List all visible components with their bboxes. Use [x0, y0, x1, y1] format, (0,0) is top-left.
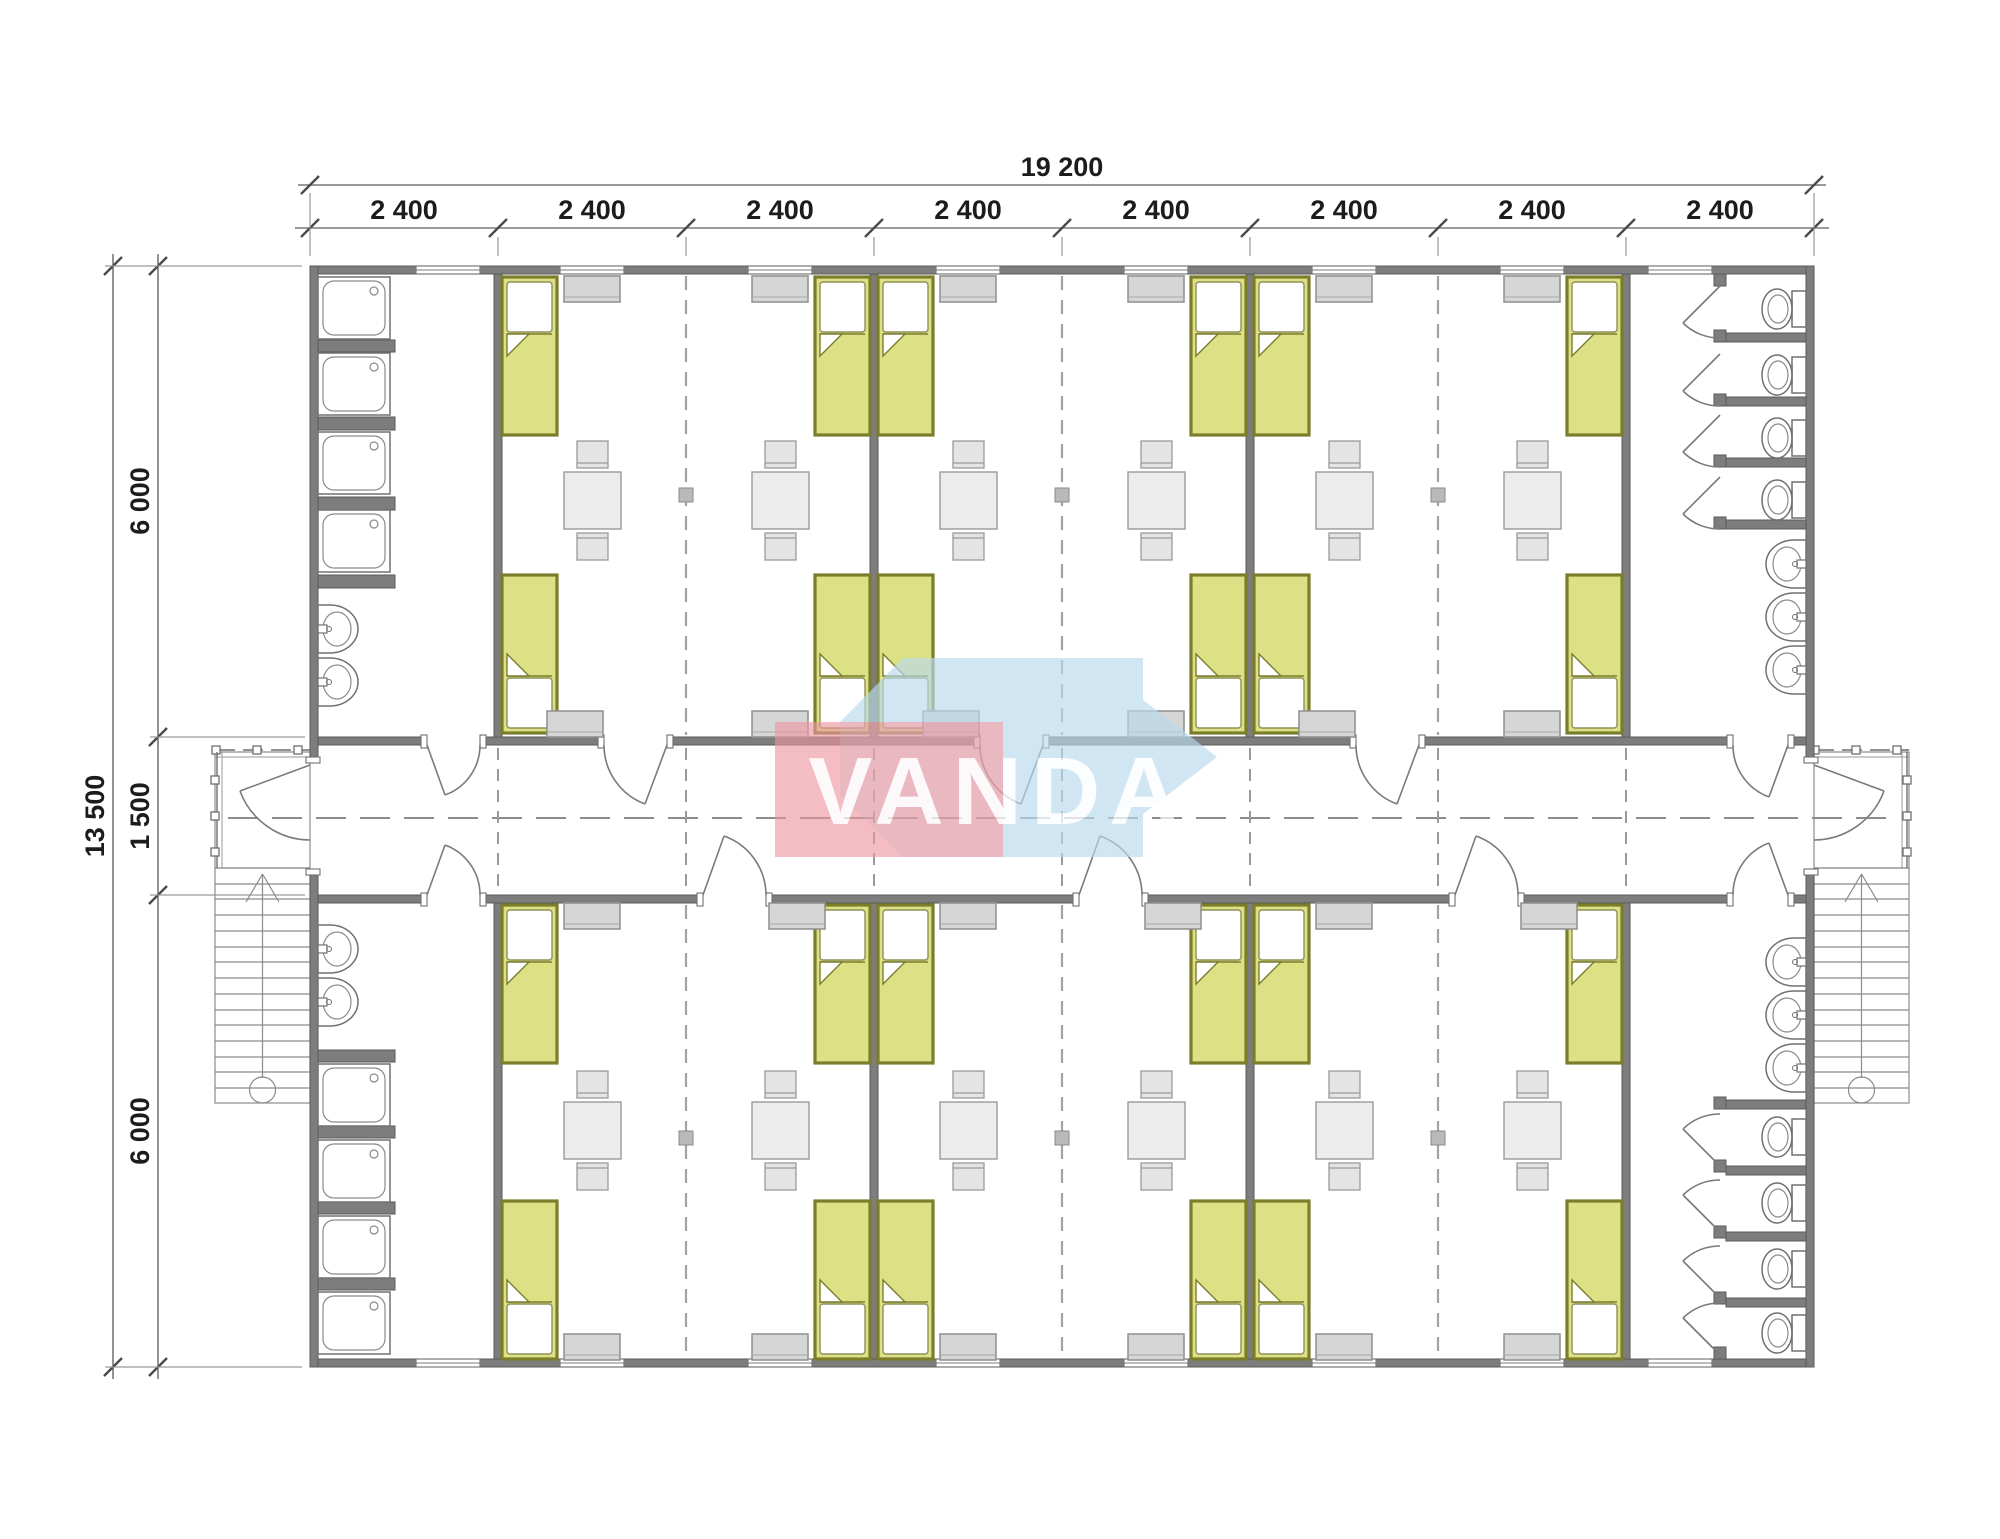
- wash-basin: [318, 978, 358, 1026]
- shower-tray: [318, 1216, 390, 1278]
- toilet: [1762, 289, 1806, 329]
- shower-tray: [318, 353, 390, 415]
- height-segment-label: 6 000: [125, 1097, 155, 1165]
- shower-tray: [318, 1292, 390, 1354]
- height-segment-label: 1 500: [125, 782, 155, 850]
- table-with-chairs: [564, 441, 621, 560]
- table-with-chairs: [752, 441, 809, 560]
- bed: [878, 905, 933, 1063]
- radiator: [1316, 276, 1372, 302]
- bed: [1191, 575, 1246, 733]
- height-segment-label: 6 000: [125, 467, 155, 535]
- axis-marker: [1055, 488, 1069, 502]
- window: [1648, 266, 1712, 274]
- dimension-left: 13 500 6 000 1 500 6 000: [80, 254, 305, 1379]
- toilet: [1762, 1249, 1806, 1289]
- bed: [1254, 277, 1309, 435]
- door-room-bottom: [1455, 836, 1518, 895]
- wash-basin: [1766, 593, 1806, 641]
- wash-basin: [1766, 1044, 1806, 1092]
- cabinet: [1504, 711, 1560, 737]
- cabinet: [1299, 711, 1355, 737]
- bed: [1254, 905, 1309, 1063]
- radiator: [940, 276, 996, 302]
- radiator: [1504, 1334, 1560, 1360]
- bed: [1191, 1201, 1246, 1359]
- bed: [1567, 575, 1622, 733]
- radiator: [564, 1334, 620, 1360]
- bed: [878, 1201, 933, 1359]
- floor-plan-drawing: 19 200 2 400 2 400 2 400 2 400 2 400 2 4…: [0, 0, 2000, 1539]
- radiator: [1504, 276, 1560, 302]
- toilet: [1762, 418, 1806, 458]
- door-room-bottom: [703, 836, 766, 895]
- stair-start-marker: [250, 1077, 276, 1103]
- shower-tray: [318, 1140, 390, 1202]
- radiator: [752, 276, 808, 302]
- wash-basin: [1766, 540, 1806, 588]
- stairs-east: [1811, 746, 1911, 1103]
- wash-basin: [318, 925, 358, 973]
- radiator: [564, 276, 620, 302]
- cabinet: [547, 711, 603, 737]
- bed: [502, 905, 557, 1063]
- shower-tray: [318, 510, 390, 572]
- door-entrance-west: [240, 765, 310, 840]
- table-with-chairs: [940, 441, 997, 560]
- radiator: [752, 1334, 808, 1360]
- wash-basin: [1766, 991, 1806, 1039]
- logo-wordmark: VANDA: [808, 738, 1187, 845]
- window: [1312, 266, 1376, 274]
- bed: [1567, 1201, 1622, 1359]
- cabinet: [769, 903, 825, 929]
- module-width-label: 2 400: [1498, 195, 1566, 225]
- bed: [1254, 1201, 1309, 1359]
- door-washroom-top: [427, 745, 480, 795]
- module-width-label: 2 400: [1310, 195, 1378, 225]
- toilet: [1762, 355, 1806, 395]
- cabinet: [1145, 903, 1201, 929]
- axis-marker: [679, 488, 693, 502]
- module-width-label: 2 400: [1122, 195, 1190, 225]
- door-wc-stall: [1683, 1180, 1720, 1232]
- shower-tray: [318, 1064, 390, 1126]
- window: [936, 266, 1000, 274]
- table-with-chairs: [1504, 441, 1561, 560]
- radiator: [1316, 1334, 1372, 1360]
- door-wc-stall: [1683, 1114, 1720, 1166]
- window: [560, 266, 624, 274]
- wash-basin: [318, 605, 358, 653]
- axis-marker: [1055, 1131, 1069, 1145]
- toilet: [1762, 480, 1806, 520]
- dimension-top: 19 200 2 400 2 400 2 400 2 400 2 400 2 4…: [295, 152, 1829, 256]
- table-with-chairs: [752, 1071, 809, 1190]
- cabinet: [1316, 903, 1372, 929]
- window: [416, 1359, 480, 1367]
- table-with-chairs: [1128, 1071, 1185, 1190]
- overall-height-label: 13 500: [80, 775, 110, 858]
- radiator: [1128, 276, 1184, 302]
- wash-basin: [318, 658, 358, 706]
- module-width-label: 2 400: [370, 195, 438, 225]
- floor-plan-page: 19 200 2 400 2 400 2 400 2 400 2 400 2 4…: [0, 0, 2000, 1539]
- bed: [502, 1201, 557, 1359]
- module-width-label: 2 400: [1686, 195, 1754, 225]
- cabinet: [564, 903, 620, 929]
- table-with-chairs: [1128, 441, 1185, 560]
- window: [1648, 1359, 1712, 1367]
- bed: [815, 1201, 870, 1359]
- bed: [1191, 277, 1246, 435]
- module-width-label: 2 400: [558, 195, 626, 225]
- window: [416, 266, 480, 274]
- window: [748, 266, 812, 274]
- axis-marker: [679, 1131, 693, 1145]
- door-wc-stall: [1683, 1246, 1720, 1298]
- bed: [878, 277, 933, 435]
- door-wc-top: [1733, 745, 1788, 797]
- window: [1500, 266, 1564, 274]
- door-room-top: [1356, 745, 1419, 804]
- door-wc-bottom: [1733, 843, 1788, 895]
- bed: [502, 575, 557, 733]
- module-width-label: 2 400: [934, 195, 1002, 225]
- toilet: [1762, 1313, 1806, 1353]
- bed: [502, 277, 557, 435]
- shower-tray: [318, 432, 390, 494]
- stairs-west: [211, 746, 310, 1103]
- bed: [815, 277, 870, 435]
- door-room-top: [604, 745, 667, 804]
- wash-basin: [1766, 938, 1806, 986]
- axis-marker: [1431, 488, 1445, 502]
- table-with-chairs: [940, 1071, 997, 1190]
- door-washroom-bottom: [427, 845, 480, 895]
- table-with-chairs: [1316, 441, 1373, 560]
- table-with-chairs: [1504, 1071, 1561, 1190]
- toilet: [1762, 1183, 1806, 1223]
- window: [1124, 266, 1188, 274]
- stair-start-marker: [1849, 1077, 1875, 1103]
- door-entrance-east: [1814, 765, 1884, 840]
- radiator: [1128, 1334, 1184, 1360]
- table-with-chairs: [1316, 1071, 1373, 1190]
- table-with-chairs: [564, 1071, 621, 1190]
- wash-basin: [1766, 646, 1806, 694]
- axis-marker: [1431, 1131, 1445, 1145]
- cabinet: [1521, 903, 1577, 929]
- shower-tray: [318, 277, 390, 339]
- module-width-label: 2 400: [746, 195, 814, 225]
- bed: [1254, 575, 1309, 733]
- toilet: [1762, 1117, 1806, 1157]
- radiator: [940, 1334, 996, 1360]
- cabinet: [940, 903, 996, 929]
- bed: [1567, 277, 1622, 435]
- overall-width-label: 19 200: [1021, 152, 1104, 182]
